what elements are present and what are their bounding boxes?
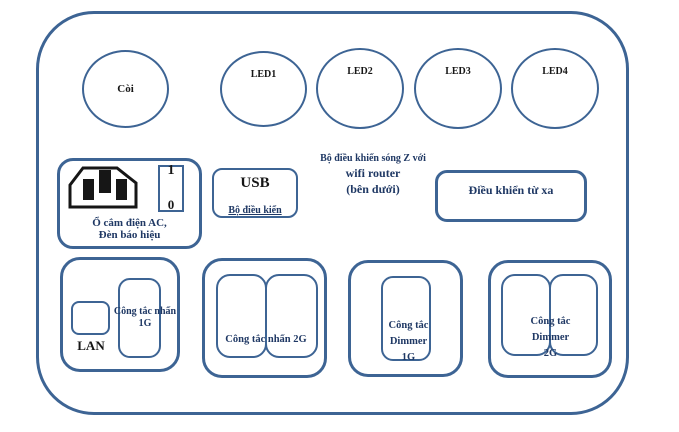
led1-circle: LED1 [220,51,307,127]
module-dimmer-2g: Công tắc Dimmer 2G [488,260,612,378]
usb-module: USB Bộ điều kiển [212,168,298,218]
zwave-note-line1: Bộ điều khiển sóng Z với [308,153,438,164]
horn-circle: Còi [82,50,169,128]
power-module: 1 0 Ổ cắm điện AC, Đèn báo hiệu [57,158,202,249]
power-switch-off-label: 0 [160,197,182,213]
push-switch-1g-label-line1: Công tắc nhấn [109,306,181,318]
dimmer-2g-label-line3: 2G [513,346,588,362]
push-switch-2g-label: Công tắc nhấn 2G [210,334,322,345]
led3-circle: LED3 [414,48,502,129]
ac-inlet-icon [68,166,138,209]
push-switch-1g-label: Công tắc nhấn 1G [109,306,181,329]
module-lan-push-1g: LAN Công tắc nhấn 1G [60,257,180,372]
power-caption-line1: Ổ cắm điện AC, [60,217,199,230]
dimmer-2g-label-line2: Dimmer [513,330,588,346]
horn-label: Còi [117,83,134,95]
device-panel-diagram: Còi LED1 LED2 LED3 LED4 1 0 Ổ cắm điện A… [0,0,679,432]
dimmer-1g-label: Công tắc Dimmer 1G [371,318,446,365]
dimmer-1g-label-line2: Dimmer [371,334,446,350]
led3-label: LED3 [416,50,500,77]
push-switch-2g-left-rect [216,274,267,358]
led2-circle: LED2 [316,48,404,129]
remote-label: Điều khiển từ xa [438,183,584,198]
power-caption-line2: Đèn báo hiệu [60,229,199,242]
dimmer-1g-label-line1: Công tắc [371,318,446,334]
dimmer-2g-label: Công tắc Dimmer 2G [513,314,588,361]
module-push-2g: Công tắc nhấn 2G [202,258,327,378]
push-switch-2g-right-rect [265,274,318,358]
usb-caption: Bộ điều kiển [214,205,296,216]
module-dimmer-1g: Công tắc Dimmer 1G [348,260,463,377]
zwave-note: Bộ điều khiển sóng Z với wifi router (bê… [308,153,438,197]
zwave-note-line3: (bên dưới) [308,182,438,197]
lan-port [71,301,110,335]
led1-label: LED1 [222,53,305,80]
led4-label: LED4 [513,50,597,77]
dimmer-1g-label-line3: 1G [371,350,446,366]
power-switch: 1 0 [158,165,184,212]
power-switch-on-label: 1 [160,163,182,179]
led4-circle: LED4 [511,48,599,129]
dimmer-2g-label-line1: Công tắc [513,314,588,330]
zwave-note-line2: wifi router [308,166,438,181]
push-switch-1g-label-line2: 1G [109,318,181,330]
usb-title: USB [214,175,296,192]
led2-label: LED2 [318,50,402,77]
power-caption: Ổ cắm điện AC, Đèn báo hiệu [60,217,199,242]
remote-control-box: Điều khiển từ xa [435,170,587,222]
lan-label: LAN [69,338,113,354]
